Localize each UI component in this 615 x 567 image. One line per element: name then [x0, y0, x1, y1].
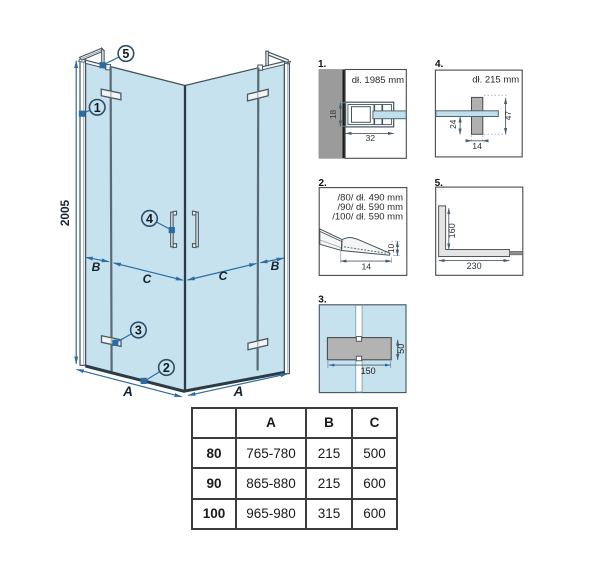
svg-text:4.: 4. — [435, 59, 444, 70]
svg-text:50: 50 — [396, 344, 406, 354]
svg-text:1: 1 — [94, 101, 101, 115]
svg-text:150: 150 — [361, 366, 376, 376]
svg-text:1.: 1. — [318, 59, 327, 70]
svg-text:dł. 1985 mm: dł. 1985 mm — [352, 75, 404, 86]
svg-text:C: C — [143, 272, 152, 286]
svg-text:2: 2 — [163, 361, 170, 375]
svg-text:A: A — [233, 384, 244, 399]
svg-text:10: 10 — [386, 243, 396, 253]
svg-text:14: 14 — [472, 141, 482, 151]
svg-text:230: 230 — [467, 261, 482, 271]
svg-text:160: 160 — [447, 223, 457, 238]
svg-text:2005: 2005 — [58, 199, 72, 226]
svg-text:47: 47 — [503, 111, 513, 121]
svg-text:B: B — [92, 260, 101, 274]
svg-text:B: B — [271, 259, 280, 273]
svg-text:/100/ dł. 590 mm: /100/ dł. 590 mm — [332, 212, 403, 223]
svg-text:C: C — [219, 269, 228, 283]
svg-text:32: 32 — [365, 133, 375, 143]
svg-text:dł. 215 mm: dł. 215 mm — [472, 75, 519, 86]
svg-text:18: 18 — [328, 110, 338, 120]
svg-text:3.: 3. — [318, 295, 327, 306]
svg-text:5: 5 — [122, 47, 129, 61]
svg-text:3: 3 — [135, 324, 142, 338]
svg-text:A: A — [122, 384, 133, 399]
svg-text:14: 14 — [361, 261, 371, 271]
svg-text:24: 24 — [448, 119, 458, 129]
svg-text:4: 4 — [146, 212, 153, 226]
